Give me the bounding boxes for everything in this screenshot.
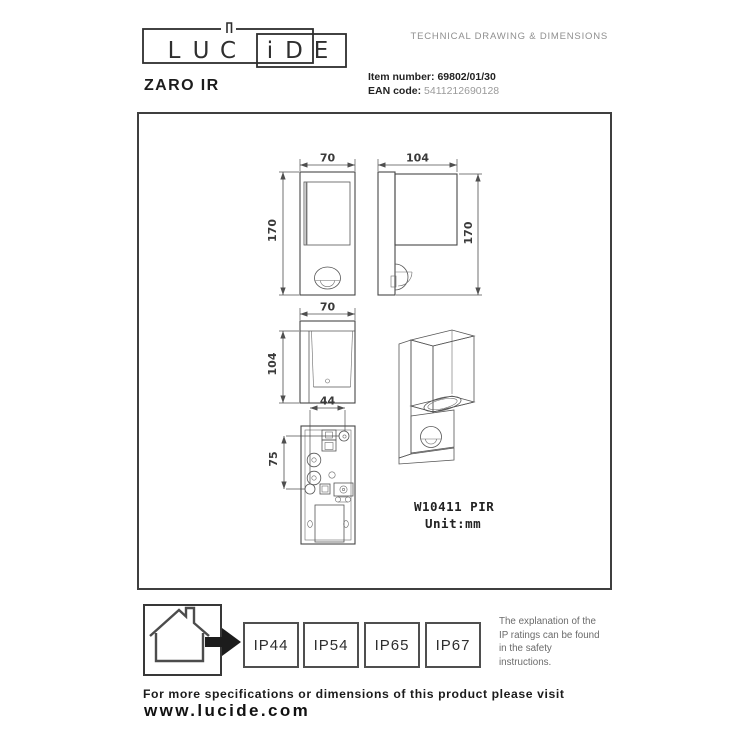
dim-front-width: 70: [320, 152, 336, 165]
model-code: W10411 PIR: [414, 499, 494, 514]
screw-hole-top: [339, 431, 349, 441]
ip54-badge: IP54: [303, 622, 359, 668]
perspective-view: [399, 330, 474, 464]
technical-sheet-page: L U C i D E TECHNICAL DRAWING & DIMENSIO…: [0, 0, 750, 750]
top-view: 70 104: [266, 301, 355, 404]
screw-hole-bottom: [305, 484, 315, 494]
dim-plate-y: 75: [267, 451, 280, 466]
ip65-badge: IP65: [364, 622, 420, 668]
pir-sensor-3d: [421, 427, 442, 448]
drawing-frame: 70 170 104: [137, 112, 612, 590]
arrow-right-icon: [198, 624, 283, 660]
item-number-row: Item number: 69802/01/30: [368, 71, 499, 85]
dim-top-depth: 104: [266, 352, 279, 375]
ean-value: 5411212690128: [424, 85, 499, 97]
logo-letter: C: [220, 38, 236, 64]
logo-letter: D: [285, 38, 303, 64]
item-number-label: Item number:: [368, 71, 435, 83]
product-name: ZARO IR: [144, 77, 220, 95]
doc-type-label: TECHNICAL DRAWING & DIMENSIONS: [411, 31, 608, 42]
unit-label: Unit:mm: [425, 516, 481, 531]
side-view: 104 170: [378, 152, 482, 296]
item-number-value: 69802/01/30: [437, 71, 495, 83]
logo-letter: L: [168, 38, 181, 64]
footer-note: For more specifications or dimensions of…: [143, 687, 565, 701]
lucide-logo: L U C i D E: [140, 20, 352, 72]
dim-front-height: 170: [266, 219, 279, 242]
dim-side-height: 170: [462, 221, 475, 244]
ip67-badge: IP67: [425, 622, 481, 668]
junction-opening: [315, 505, 344, 542]
ip-explanation-text: The explanation of the IP ratings can be…: [499, 615, 617, 669]
pir-sensor-side: [395, 264, 408, 290]
dim-side-depth: 104: [406, 152, 429, 165]
mounting-plate-view: 44 75: [267, 395, 355, 545]
website-url: www.lucide.com: [144, 701, 310, 721]
logo-letter: i: [267, 38, 273, 64]
logo-letter: E: [314, 38, 329, 64]
dim-plate-x: 44: [320, 395, 336, 408]
technical-drawing: 70 170 104: [139, 114, 610, 588]
ean-label: EAN code:: [368, 85, 421, 97]
logo-letter: U: [193, 38, 210, 64]
terminal-block: [334, 483, 353, 496]
ean-row: EAN code: 5411212690128: [368, 85, 499, 99]
logo-border-gap: [221, 25, 236, 33]
pir-sensor-front: [315, 267, 341, 289]
dim-top-width: 70: [320, 301, 336, 314]
front-view: 70 170: [266, 152, 355, 296]
item-info-block: Item number: 69802/01/30 EAN code: 54112…: [368, 71, 499, 98]
